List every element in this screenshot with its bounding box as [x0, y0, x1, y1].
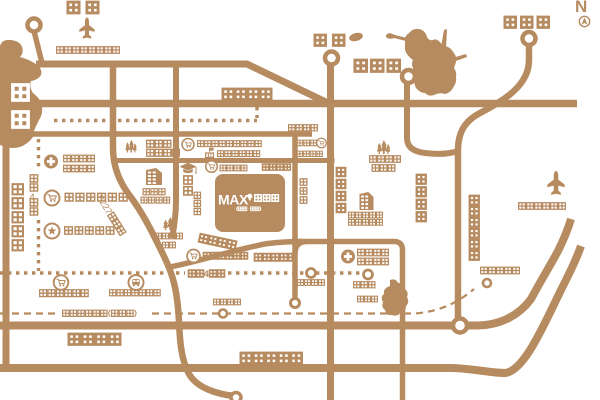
svg-text:·: ·: [248, 207, 250, 213]
svg-text:MAX: MAX: [218, 192, 249, 208]
svg-text:N: N: [575, 0, 587, 16]
